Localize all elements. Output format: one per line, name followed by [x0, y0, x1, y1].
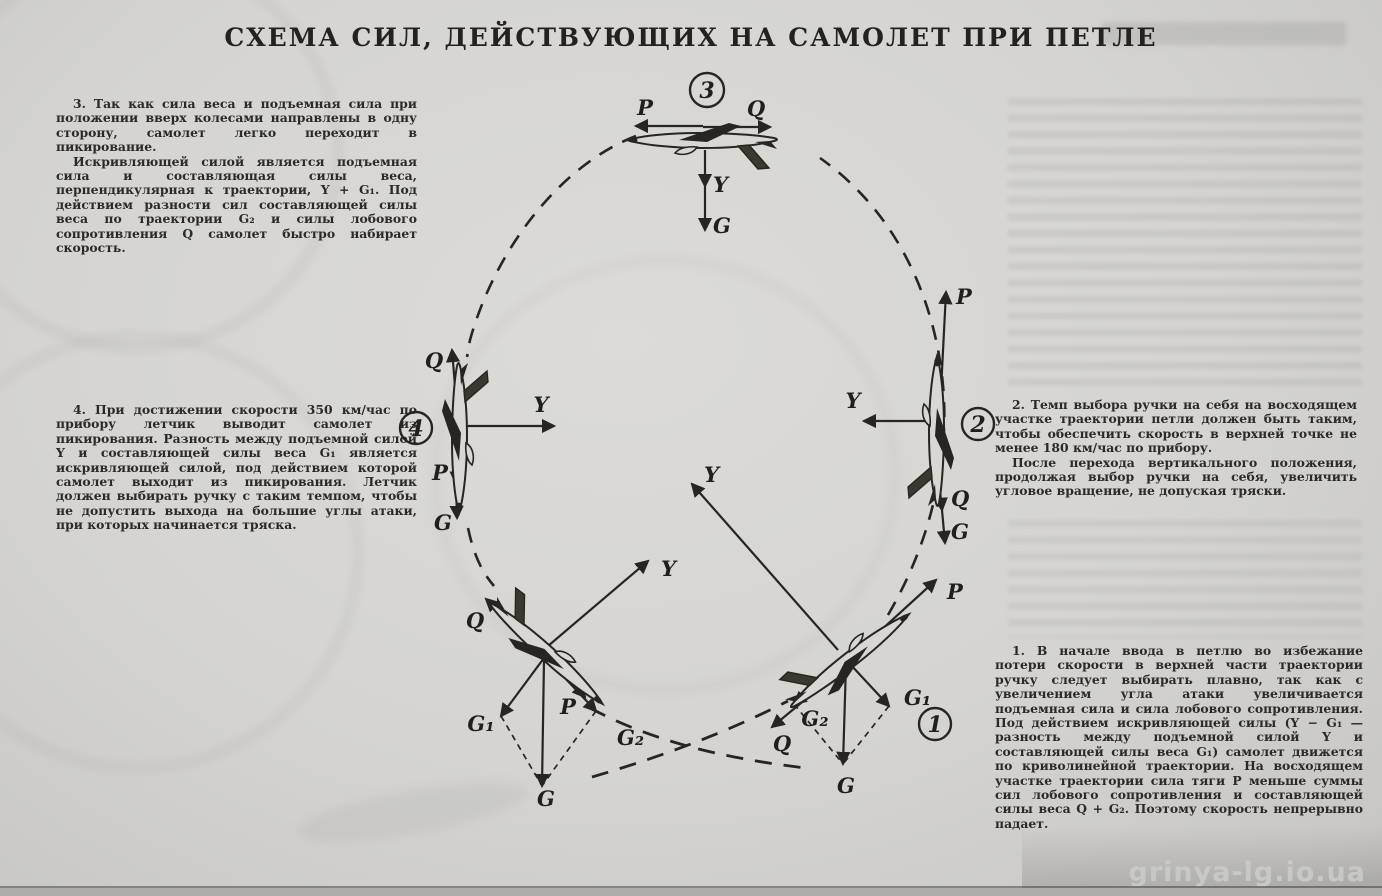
force-label-q-right: Q	[951, 486, 969, 511]
position-badge-2-number: 2	[969, 412, 985, 438]
parallelogram-bottom-left	[501, 711, 596, 786]
force-label-p-bottom-right: P	[946, 579, 964, 604]
force-label-p-left: P	[431, 460, 449, 485]
vector-lift-bottom-right	[692, 484, 838, 650]
trajectory-right-ascent	[820, 158, 944, 615]
position-badge-3: 3	[690, 73, 724, 107]
vector-lift-bottom-left	[548, 561, 648, 646]
aircraft-right-climbing	[908, 356, 954, 506]
force-label-y-bottom-right: Y	[704, 462, 721, 487]
loop-force-diagram: P Q Y G P Y Q G Q Y P G Y Q P G₁ G₂ G P …	[0, 0, 1382, 896]
force-label-q-left: Q	[425, 348, 443, 373]
force-label-y-right: Y	[846, 388, 863, 413]
force-label-g-left: G	[434, 510, 452, 535]
force-label-g1-bottom-right: G₁	[904, 685, 931, 710]
force-label-p-top: P	[636, 95, 654, 120]
aircraft-top-inverted	[627, 123, 777, 169]
position-badge-3-number: 3	[699, 78, 714, 104]
position-badge-2: 2	[962, 408, 994, 440]
force-label-g-bottom-left: G	[537, 786, 555, 811]
force-label-g2-bottom-left: G₂	[617, 725, 644, 750]
force-label-q-bottom-right: Q	[773, 731, 791, 756]
watermark: grinya-lg.io.ua	[1129, 857, 1367, 888]
trajectory-left-descent	[467, 136, 636, 357]
aircraft-left-diving	[442, 363, 488, 513]
trajectory-left-bottom	[468, 528, 494, 586]
position-badge-1: 1	[919, 708, 951, 740]
scanned-page: СХЕМА СИЛ, ДЕЙСТВУЮЩИХ НА САМОЛЕТ ПРИ ПЕ…	[0, 0, 1382, 896]
force-label-g-top: G	[713, 213, 731, 238]
force-label-p-bottom-left: P	[559, 694, 577, 719]
position-badge-4: 4	[400, 412, 432, 444]
vector-weight-right	[942, 510, 945, 543]
position-badge-4-number: 4	[408, 416, 423, 442]
force-label-p-right: P	[955, 284, 973, 309]
force-label-g2-bottom-right: G₂	[801, 706, 828, 731]
force-label-q-top: Q	[747, 96, 765, 121]
vector-weight-normal-bottom-left	[501, 658, 544, 716]
aircraft-bottom-right-entering	[773, 591, 920, 720]
vector-weight-bottom-left	[542, 660, 544, 786]
force-label-q-bottom-left: Q	[466, 608, 484, 633]
force-label-y-top: Y	[713, 172, 730, 197]
vector-weight-normal-bottom-right	[850, 664, 889, 706]
position-badge-1-number: 1	[927, 712, 942, 738]
force-label-g-right: G	[951, 519, 969, 544]
force-label-y-bottom-left: Y	[661, 556, 678, 581]
force-label-g-bottom-right: G	[837, 773, 855, 798]
force-label-y-left: Y	[534, 392, 551, 417]
force-label-g1-bottom-left: G₁	[467, 711, 494, 736]
